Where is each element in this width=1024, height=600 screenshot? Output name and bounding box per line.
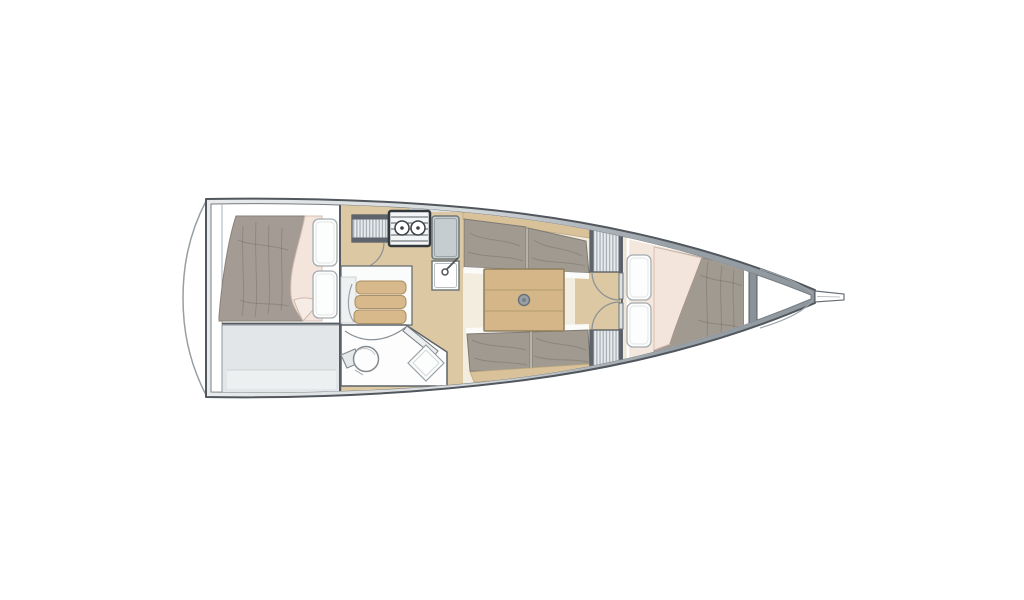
companionway-step-1 [356,281,406,294]
fwd-doorway-sole [575,271,622,331]
louver-top-cap-left [590,228,594,272]
bow-fitting-line [817,297,840,298]
cabin-door-leaf-bottom [619,303,623,329]
aft-storage [222,325,341,393]
settee-starboard-cushion-1 [467,332,530,372]
vberth-pillow-2 [627,303,651,347]
aft-storage-shelf [227,370,336,389]
sink-drain [442,269,448,275]
burner-2-center [416,226,420,230]
table-pedestal-center [522,298,526,302]
aft-cabin [219,216,337,321]
cabin-door-leaf-top [619,273,623,299]
vberth-foot-trim [744,262,749,334]
boat-floor-plan [0,0,1024,600]
vberth-pillow-1 [627,255,651,300]
companionway-step-3 [354,310,406,324]
aft-pillow-2 [313,271,337,318]
louver-locker-cap-top [352,215,388,220]
galley-counter-unit [432,216,459,259]
louver-locker-cap-bottom [352,238,388,243]
aft-pillow-1 [313,219,337,266]
transom [183,201,206,395]
companionway-step-2 [355,296,406,309]
burner-1-center [400,226,404,230]
boat-floor-plan-page [0,0,1024,600]
